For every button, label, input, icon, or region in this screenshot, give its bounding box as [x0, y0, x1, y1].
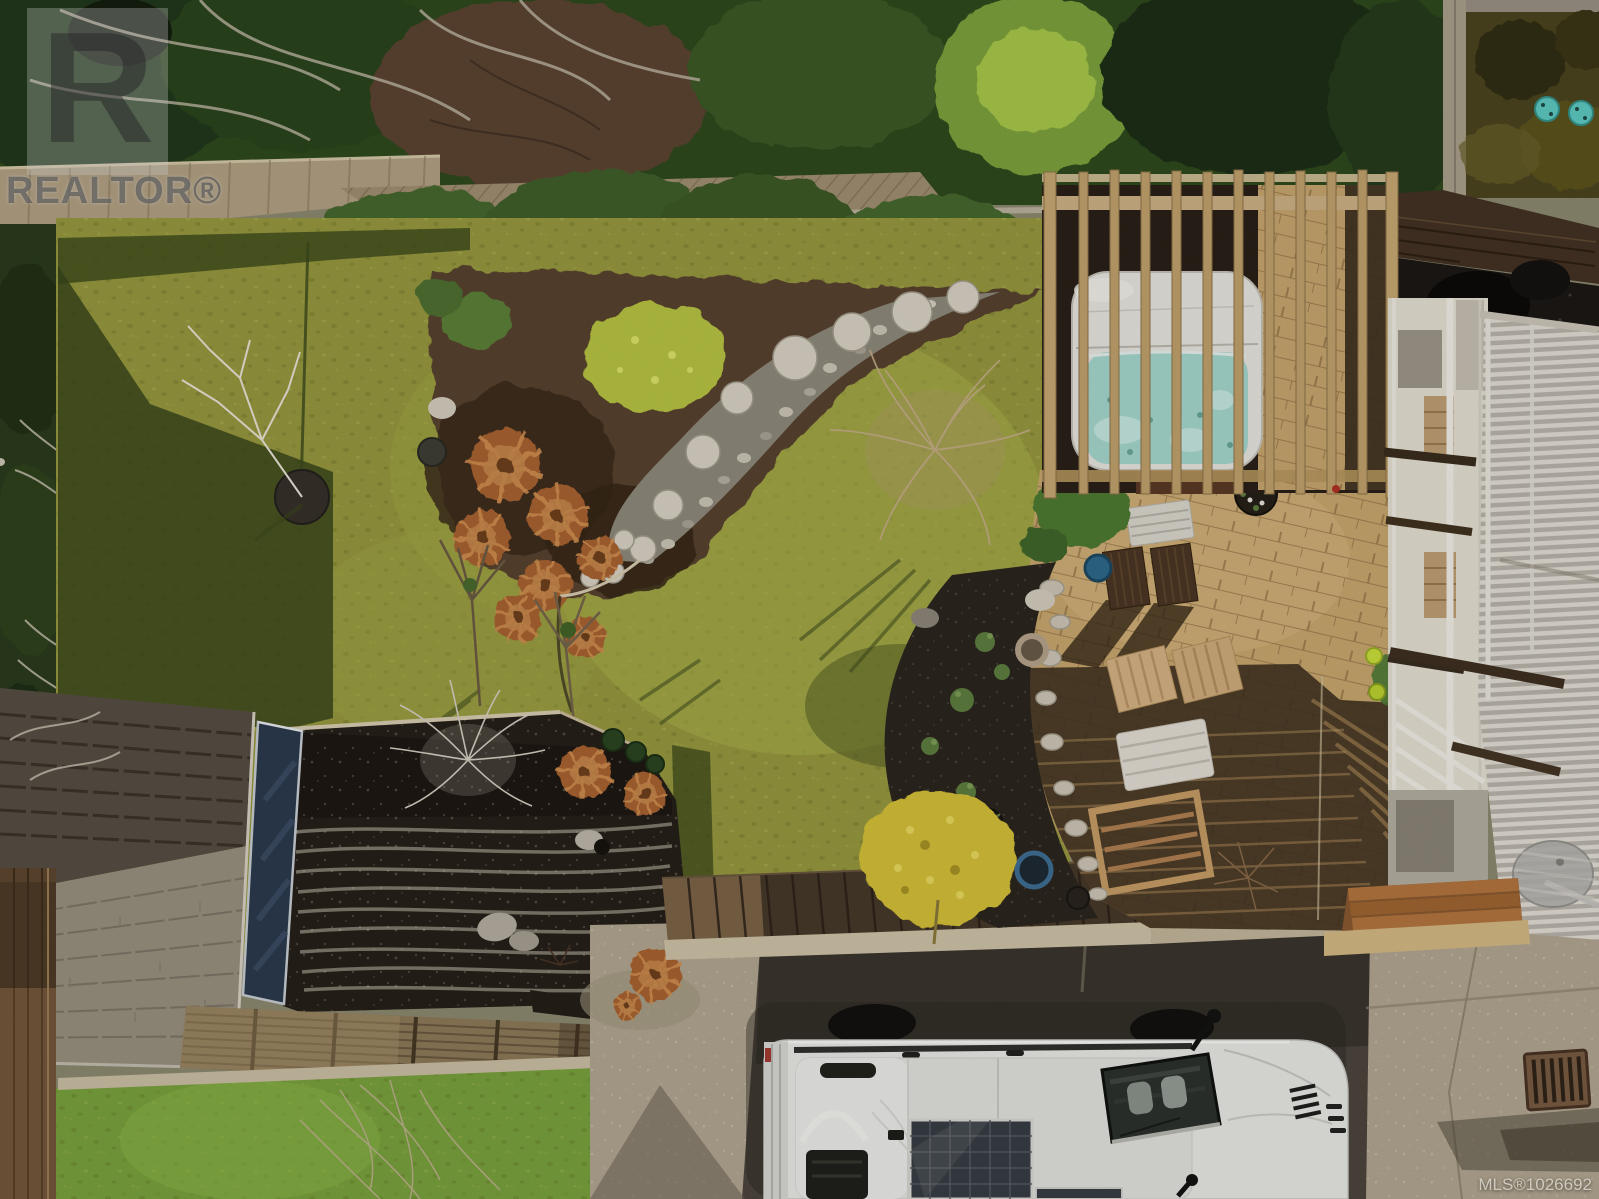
- backyard-scene: [0, 0, 1599, 1199]
- aerial-photo: R REALTOR® MLS®1026692: [0, 0, 1599, 1199]
- photo-grain: [0, 0, 1599, 1199]
